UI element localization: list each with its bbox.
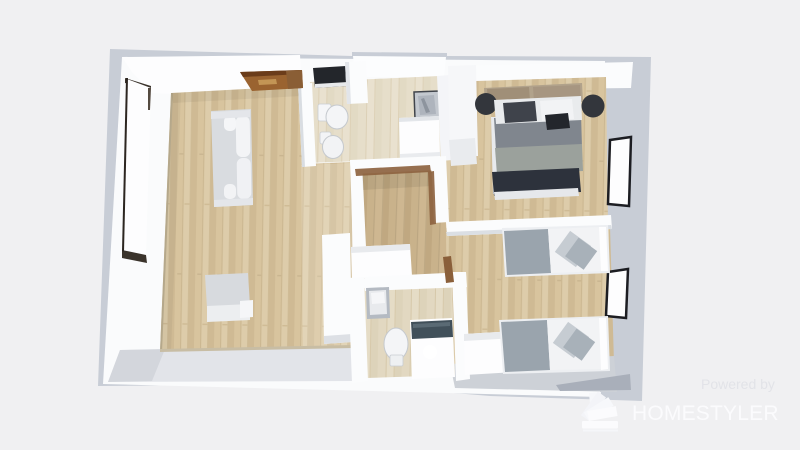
svg-text:Powered by: Powered by <box>701 376 775 392</box>
svg-text:HOMESTYLER: HOMESTYLER <box>632 402 779 425</box>
